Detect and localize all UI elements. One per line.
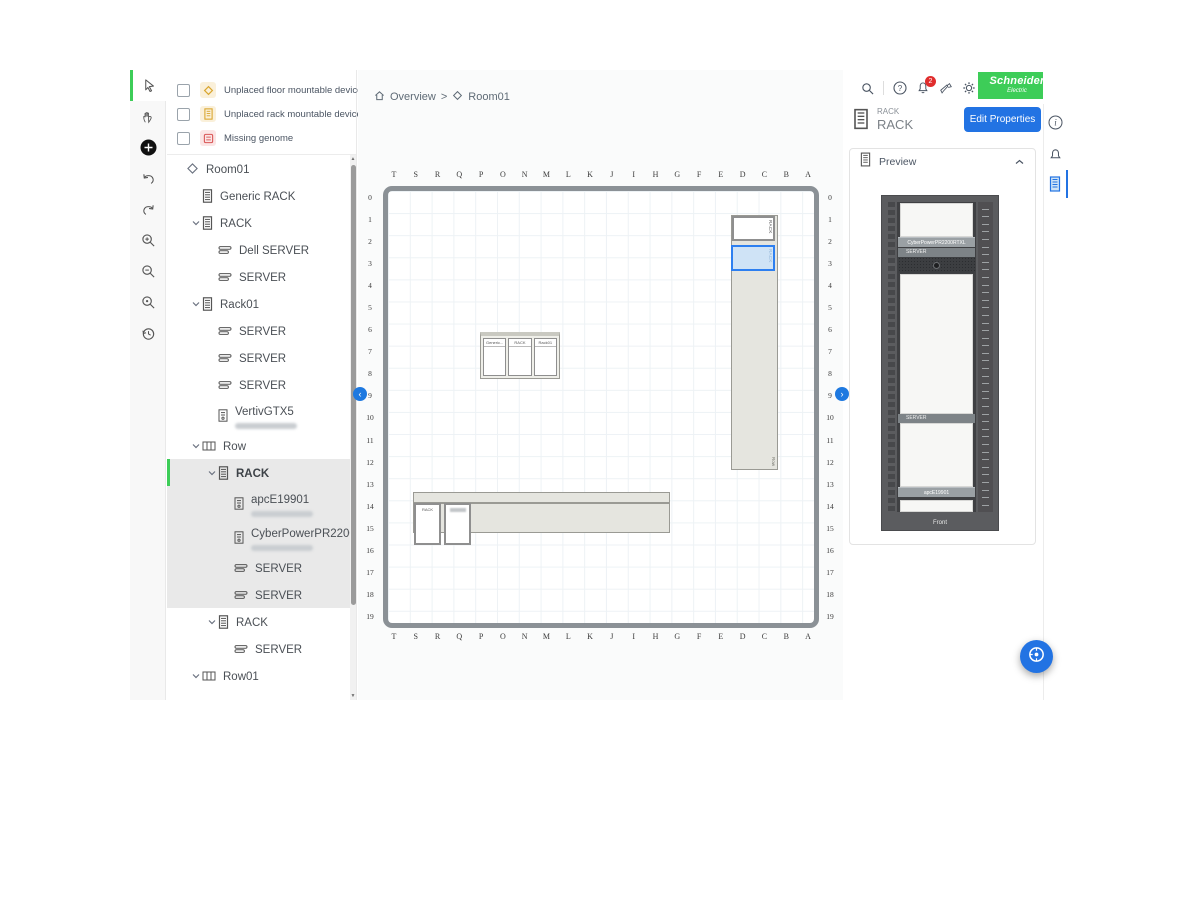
rack-device-icon bbox=[200, 106, 216, 122]
cursor-icon bbox=[142, 78, 157, 93]
grid-col-label: N bbox=[514, 632, 536, 641]
device-server-1: SERVER bbox=[898, 248, 975, 257]
tree-item-label: Dell SERVER bbox=[239, 245, 309, 257]
unit-tick bbox=[982, 505, 989, 506]
floor-plan-canvas[interactable]: Overview > Room01 TSRQPONMLKJIHGFEDCBA T… bbox=[358, 70, 843, 700]
empty-slot bbox=[900, 423, 973, 487]
grid-col-label: K bbox=[579, 170, 601, 179]
tree-item-label: RACK bbox=[236, 617, 268, 629]
unit-tick bbox=[982, 338, 989, 339]
tree-item-room01[interactable]: Room01 bbox=[167, 155, 351, 182]
grid-col-label: J bbox=[601, 170, 623, 179]
tree-item-label: SERVER bbox=[239, 353, 286, 365]
grid-col-label: J bbox=[601, 632, 623, 641]
collapse-left-panel-button[interactable]: ‹ bbox=[353, 387, 367, 401]
empty-slot bbox=[900, 203, 973, 237]
tree-item-label: SERVER bbox=[255, 563, 302, 575]
grid-row-label: 18 bbox=[823, 584, 837, 606]
breadcrumb-overview[interactable]: Overview bbox=[390, 91, 436, 103]
grid-col-label: I bbox=[623, 170, 645, 179]
grid-row-labels-left: 012345678910111213141516171819 bbox=[363, 186, 377, 628]
search-icon[interactable] bbox=[861, 82, 874, 95]
breadcrumb: Overview > Room01 bbox=[374, 90, 510, 104]
grid-row-label: 19 bbox=[363, 606, 377, 628]
unit-tick bbox=[982, 216, 989, 217]
grid-column-labels-top: TSRQPONMLKJIHGFEDCBA bbox=[383, 170, 819, 179]
rack-icon bbox=[202, 216, 213, 230]
device-tree-panel: Unplaced floor mountable devicesUnplaced… bbox=[167, 70, 357, 700]
grid-row-label: 0 bbox=[823, 186, 837, 208]
zoom-in-button[interactable] bbox=[130, 225, 166, 256]
device-name: RACK bbox=[877, 117, 913, 132]
rack-icon bbox=[218, 615, 229, 629]
rack-icon bbox=[853, 108, 869, 135]
history-clock-icon bbox=[141, 326, 156, 341]
info-icon[interactable]: i bbox=[1043, 108, 1068, 136]
ups-icon bbox=[234, 531, 244, 544]
server-icon bbox=[234, 590, 248, 600]
unit-tick bbox=[982, 421, 989, 422]
unit-tick bbox=[982, 436, 989, 437]
chevron-down-icon[interactable] bbox=[189, 218, 202, 228]
rack-label: RACK bbox=[768, 220, 773, 234]
svg-text:i: i bbox=[1054, 117, 1057, 127]
rack-object[interactable]: Generic... bbox=[483, 338, 506, 376]
grid-row-label: 12 bbox=[363, 451, 377, 473]
select-tool-button[interactable] bbox=[130, 70, 166, 101]
tree-scrollbar[interactable]: ▲ ▼ bbox=[350, 155, 356, 700]
notification-badge: 2 bbox=[925, 76, 936, 87]
grid-col-label: G bbox=[666, 632, 688, 641]
empty-slot bbox=[900, 274, 973, 414]
unit-tick bbox=[982, 262, 989, 263]
filter-section: Unplaced floor mountable devicesUnplaced… bbox=[167, 70, 356, 155]
grid-row-label: 18 bbox=[363, 584, 377, 606]
grid-row-label: 4 bbox=[363, 274, 377, 296]
unit-tick bbox=[982, 224, 989, 225]
support-icon bbox=[1027, 645, 1046, 669]
tree-item-apce19901[interactable]: apcE19901 bbox=[167, 486, 351, 520]
chevron-down-icon[interactable] bbox=[189, 299, 202, 309]
grid-col-label: O bbox=[492, 632, 514, 641]
breadcrumb-separator: > bbox=[441, 91, 447, 103]
unit-tick bbox=[982, 292, 989, 293]
rack-icon bbox=[218, 466, 229, 480]
grid-col-label: F bbox=[688, 632, 710, 641]
server-icon bbox=[218, 245, 232, 255]
unit-tick bbox=[982, 360, 989, 361]
scroll-down-icon[interactable]: ▼ bbox=[350, 693, 356, 699]
rack-icon bbox=[860, 152, 871, 172]
grid-col-label: K bbox=[579, 632, 601, 641]
app-window: Unplaced floor mountable devicesUnplaced… bbox=[130, 70, 1068, 700]
unit-tick bbox=[982, 452, 989, 453]
rack-panel-icon[interactable] bbox=[1043, 170, 1068, 198]
tree-item-label: SERVER bbox=[239, 272, 286, 284]
grid-row-label: 3 bbox=[823, 252, 837, 274]
help-icon[interactable]: ? bbox=[893, 81, 907, 95]
tree-item-label: CyberPowerPR2200R... bbox=[251, 528, 351, 540]
grid-col-label: L bbox=[557, 632, 579, 641]
grid-col-label: R bbox=[427, 632, 449, 641]
rack-label: Rack01 bbox=[535, 339, 556, 347]
filter-label: Unplaced rack mountable devices bbox=[224, 109, 367, 120]
tree-item-server[interactable]: SERVER bbox=[167, 344, 351, 371]
rack-object[interactable]: RACK bbox=[732, 216, 775, 241]
grid-row-label: 15 bbox=[363, 517, 377, 539]
tree-item-rack[interactable]: RACK bbox=[167, 209, 351, 236]
selected-device-header: RACK RACK Edit Properties bbox=[849, 106, 1039, 140]
chevron-down-icon[interactable] bbox=[189, 671, 202, 681]
chevron-down-icon[interactable] bbox=[189, 441, 202, 451]
grid-col-label: L bbox=[557, 170, 579, 179]
server-faceplate bbox=[898, 257, 975, 273]
grid-col-label: B bbox=[775, 632, 797, 641]
rack-front-preview: CyberPowerPR2200RTXL SERVER SERVER apcE1… bbox=[881, 195, 999, 531]
filter-checkbox[interactable] bbox=[177, 84, 190, 97]
grid-col-label: B bbox=[775, 170, 797, 179]
grid-row-label: 2 bbox=[363, 230, 377, 252]
collapse-right-panel-button[interactable]: › bbox=[835, 387, 849, 401]
rack-rail-units bbox=[978, 202, 993, 512]
unit-tick bbox=[982, 300, 989, 301]
grid-row-label: 8 bbox=[363, 363, 377, 385]
grid-col-label: G bbox=[666, 170, 688, 179]
grid-col-label: T bbox=[383, 170, 405, 179]
grid-row-label: 5 bbox=[363, 296, 377, 318]
grid-col-label: A bbox=[797, 170, 819, 179]
tree-item-label: Row01 bbox=[223, 671, 259, 683]
unit-tick bbox=[982, 376, 989, 377]
missing-genome-icon bbox=[200, 130, 216, 146]
server-icon bbox=[218, 353, 232, 363]
tree-item-row01[interactable]: Row01 bbox=[167, 662, 351, 689]
grid-row-label: 7 bbox=[823, 341, 837, 363]
row-icon bbox=[202, 670, 216, 682]
grid-row-label: 15 bbox=[823, 517, 837, 539]
device-apc: apcE19901 bbox=[898, 487, 975, 497]
device-server-2: SERVER bbox=[898, 414, 975, 423]
grid-col-label: O bbox=[492, 170, 514, 179]
support-fab-button[interactable] bbox=[1020, 640, 1053, 673]
grid-row-label: 1 bbox=[363, 208, 377, 230]
unit-tick bbox=[982, 429, 989, 430]
unit-tick bbox=[982, 345, 989, 346]
grid-row-label: 2 bbox=[823, 230, 837, 252]
unit-tick bbox=[982, 247, 989, 248]
breadcrumb-room[interactable]: Room01 bbox=[468, 91, 510, 103]
grid-row-label: 13 bbox=[823, 473, 837, 495]
zoom-in-icon bbox=[141, 233, 156, 248]
grid-row-label: 17 bbox=[363, 562, 377, 584]
grid-row-label: 11 bbox=[363, 429, 377, 451]
grid-row-label: 14 bbox=[823, 495, 837, 517]
tree-item-server[interactable]: SERVER bbox=[167, 554, 351, 581]
unit-tick bbox=[982, 353, 989, 354]
unit-tick bbox=[982, 285, 989, 286]
filter-label: Missing genome bbox=[224, 133, 293, 144]
floor-device-icon bbox=[200, 82, 216, 98]
add-tool-button[interactable] bbox=[130, 132, 166, 163]
room-icon bbox=[186, 162, 199, 175]
grid-column-labels-bottom: TSRQPONMLKJIHGFEDCBA bbox=[383, 632, 819, 641]
redacted-subtitle bbox=[251, 545, 313, 551]
rack-object[interactable] bbox=[444, 503, 471, 545]
grid-col-label: H bbox=[645, 632, 667, 641]
edit-properties-button[interactable]: Edit Properties bbox=[964, 107, 1041, 132]
grid-row-label: 10 bbox=[823, 407, 837, 429]
unit-tick bbox=[982, 406, 989, 407]
tree-item-label: SERVER bbox=[239, 326, 286, 338]
scroll-up-icon[interactable]: ▲ bbox=[350, 156, 356, 162]
grid-row-label: 6 bbox=[823, 319, 837, 341]
zoom-fit-button[interactable] bbox=[130, 287, 166, 318]
grid-col-label: D bbox=[732, 632, 754, 641]
server-icon bbox=[234, 644, 248, 654]
tree-item-server[interactable]: SERVER bbox=[167, 635, 351, 662]
row01-header[interactable]: Row01 bbox=[413, 492, 670, 503]
grid-row-label: 19 bbox=[823, 606, 837, 628]
grid-row-label: 7 bbox=[363, 341, 377, 363]
rack-icon bbox=[202, 189, 213, 203]
rack-object[interactable]: RACK bbox=[414, 503, 441, 545]
rack-label: RACK bbox=[768, 249, 773, 263]
scrollbar-thumb[interactable] bbox=[351, 165, 356, 605]
tree-item-row[interactable]: Row bbox=[167, 432, 351, 459]
unit-tick bbox=[982, 474, 989, 475]
grid-col-label: M bbox=[536, 632, 558, 641]
tree-item-label: RACK bbox=[236, 468, 269, 480]
server-icon bbox=[218, 326, 232, 336]
redacted-rack-label bbox=[450, 508, 466, 512]
filter-row: Missing genome bbox=[167, 126, 356, 150]
drawing-toolbar bbox=[130, 70, 166, 700]
tree-item-generic-rack[interactable]: Generic RACK bbox=[167, 182, 351, 209]
grid-col-label: T bbox=[383, 632, 405, 641]
unit-tick bbox=[982, 497, 989, 498]
feedback-icon[interactable] bbox=[939, 82, 953, 95]
plus-circle-icon bbox=[140, 139, 157, 156]
alarms-bell-icon[interactable] bbox=[1043, 140, 1068, 168]
grid-row-label: 10 bbox=[363, 407, 377, 429]
notifications-bell-icon[interactable]: 2 bbox=[916, 81, 930, 95]
redo-icon bbox=[141, 203, 156, 216]
filter-label: Unplaced floor mountable devices bbox=[224, 85, 367, 96]
unit-tick bbox=[982, 323, 989, 324]
unit-tick bbox=[982, 444, 989, 445]
device-type-label: RACK bbox=[877, 107, 899, 116]
collapse-chevron-up-icon[interactable] bbox=[1014, 153, 1025, 171]
unit-tick bbox=[982, 391, 989, 392]
device-tree: Room01Generic RACKRACKDell SERVERSERVERR… bbox=[167, 155, 351, 700]
unit-tick bbox=[982, 277, 989, 278]
filter-checkbox[interactable] bbox=[177, 108, 190, 121]
server-icon bbox=[218, 380, 232, 390]
tree-item-label: Row bbox=[223, 441, 246, 453]
rack-object-selected[interactable]: RACK bbox=[731, 245, 775, 271]
grid-row-label: 16 bbox=[823, 540, 837, 562]
tree-item-label: Generic RACK bbox=[220, 191, 295, 203]
grid-row-label: 5 bbox=[823, 296, 837, 318]
device-cyberpower: CyberPowerPR2200RTXL bbox=[898, 237, 975, 247]
rack-group[interactable]: Generic... RACK Rack01 bbox=[480, 332, 560, 379]
tree-item-label: SERVER bbox=[255, 590, 302, 602]
unit-tick bbox=[982, 414, 989, 415]
ups-icon bbox=[218, 409, 228, 422]
inspector-panel: ? 2 RACK RACK Edit Properties Preview bbox=[843, 70, 1043, 700]
zoom-fit-icon bbox=[141, 295, 156, 310]
tree-item-label: Rack01 bbox=[220, 299, 259, 311]
tree-item-label: Room01 bbox=[206, 164, 249, 176]
tree-item-server[interactable]: SERVER bbox=[167, 581, 351, 608]
filter-row: Unplaced floor mountable devices bbox=[167, 78, 356, 102]
grid-row-label: 16 bbox=[363, 540, 377, 562]
grid-col-label: H bbox=[645, 170, 667, 179]
tree-item-server[interactable]: SERVER bbox=[167, 263, 351, 290]
server-icon bbox=[234, 563, 248, 573]
unit-tick bbox=[982, 368, 989, 369]
grid-col-label: E bbox=[710, 632, 732, 641]
tree-item-rack01[interactable]: Rack01 bbox=[167, 290, 351, 317]
grid-col-label: P bbox=[470, 632, 492, 641]
undo-button[interactable] bbox=[130, 163, 166, 194]
tree-item-label: SERVER bbox=[255, 644, 302, 656]
front-label: Front bbox=[882, 520, 998, 526]
tree-item-label: VertivGTX5 bbox=[235, 406, 294, 418]
right-edge-strip: i bbox=[1043, 70, 1068, 700]
grid-col-label: R bbox=[427, 170, 449, 179]
grid-row-label: 4 bbox=[823, 274, 837, 296]
row-label: Row bbox=[771, 457, 776, 466]
rack-rail-left bbox=[888, 202, 895, 512]
redacted-subtitle bbox=[235, 423, 297, 429]
settings-gear-icon[interactable] bbox=[962, 81, 976, 95]
row-icon bbox=[202, 440, 216, 452]
grid-col-label: E bbox=[710, 170, 732, 179]
grid-col-label: S bbox=[405, 170, 427, 179]
top-icon-bar: ? 2 bbox=[843, 74, 1000, 102]
unit-tick bbox=[982, 398, 989, 399]
rack-device-column: CyberPowerPR2200RTXL SERVER SERVER apcE1… bbox=[897, 202, 976, 512]
grid-col-label: N bbox=[514, 170, 536, 179]
rack-icon bbox=[202, 297, 213, 311]
unit-tick bbox=[982, 269, 989, 270]
zoom-out-icon bbox=[141, 264, 156, 279]
empty-slot bbox=[900, 500, 973, 512]
grid-row-label: 17 bbox=[823, 562, 837, 584]
tree-item-server[interactable]: SERVER bbox=[167, 317, 351, 344]
grid-col-label: M bbox=[536, 170, 558, 179]
rack-label: RACK bbox=[509, 339, 530, 347]
server-icon bbox=[218, 272, 232, 282]
zoom-out-button[interactable] bbox=[130, 256, 166, 287]
unit-tick bbox=[982, 482, 989, 483]
grid-col-label: C bbox=[754, 632, 776, 641]
chevron-down-icon[interactable] bbox=[205, 468, 218, 478]
hand-icon bbox=[141, 110, 155, 124]
grid-col-label: D bbox=[732, 170, 754, 179]
grid-col-label: P bbox=[470, 170, 492, 179]
unit-tick bbox=[982, 459, 989, 460]
tree-item-rack[interactable]: RACK bbox=[167, 459, 351, 486]
preview-card: Preview CyberPowerPR2200RTXL SERVER SERV… bbox=[849, 148, 1036, 545]
svg-text:?: ? bbox=[898, 84, 903, 93]
tree-item-cyberpowerpr2200r-[interactable]: CyberPowerPR2200R... bbox=[167, 520, 351, 554]
tree-item-dell-server[interactable]: Dell SERVER bbox=[167, 236, 351, 263]
home-icon bbox=[374, 90, 385, 104]
tree-item-vertivgtx5[interactable]: VertivGTX5 bbox=[167, 398, 351, 432]
redacted-subtitle bbox=[251, 511, 313, 517]
grid-row-label: 12 bbox=[823, 451, 837, 473]
unit-tick bbox=[982, 467, 989, 468]
unit-tick bbox=[982, 490, 989, 491]
filter-checkbox[interactable] bbox=[177, 132, 190, 145]
unit-tick bbox=[982, 330, 989, 331]
grid-row-label: 6 bbox=[363, 319, 377, 341]
filter-row: Unplaced rack mountable devices bbox=[167, 102, 356, 126]
tree-item-label: apcE19901 bbox=[251, 494, 309, 506]
unit-tick bbox=[982, 209, 989, 210]
history-button[interactable] bbox=[130, 318, 166, 349]
unit-tick bbox=[982, 307, 989, 308]
grid-row-labels-right: 012345678910111213141516171819 bbox=[823, 186, 837, 628]
preview-title: Preview bbox=[879, 156, 1014, 168]
undo-icon bbox=[141, 172, 156, 185]
grid-row-label: 11 bbox=[823, 429, 837, 451]
tree-item-label: SERVER bbox=[239, 380, 286, 392]
grid-row-label: 1 bbox=[823, 208, 837, 230]
grid-row-label: 0 bbox=[363, 186, 377, 208]
unit-tick bbox=[982, 383, 989, 384]
power-knob bbox=[933, 262, 940, 269]
grid-row-label: 13 bbox=[363, 473, 377, 495]
rack-label: Generic... bbox=[484, 339, 505, 347]
grid-col-label: I bbox=[623, 632, 645, 641]
rack-label: RACK bbox=[416, 507, 439, 512]
grid-col-label: F bbox=[688, 170, 710, 179]
divider bbox=[883, 81, 884, 95]
tree-item-label: RACK bbox=[220, 218, 252, 230]
grid-col-label: Q bbox=[448, 632, 470, 641]
grid-col-label: S bbox=[405, 632, 427, 641]
room-diamond-icon bbox=[452, 90, 463, 104]
grid-row-label: 3 bbox=[363, 252, 377, 274]
unit-tick bbox=[982, 315, 989, 316]
unit-tick bbox=[982, 239, 989, 240]
rack-object[interactable]: RACK bbox=[508, 338, 531, 376]
grid-row-label: 8 bbox=[823, 363, 837, 385]
pan-tool-button[interactable] bbox=[130, 101, 166, 132]
grid-col-label: A bbox=[797, 632, 819, 641]
tree-item-server[interactable]: SERVER bbox=[167, 371, 351, 398]
preview-header: Preview bbox=[850, 149, 1035, 175]
tree-item-rack[interactable]: RACK bbox=[167, 608, 351, 635]
ups-icon bbox=[234, 497, 244, 510]
chevron-down-icon[interactable] bbox=[205, 617, 218, 627]
unit-tick bbox=[982, 254, 989, 255]
unit-tick bbox=[982, 231, 989, 232]
rack-object[interactable]: Rack01 bbox=[534, 338, 557, 376]
grid-col-label: Q bbox=[448, 170, 470, 179]
grid-col-label: C bbox=[754, 170, 776, 179]
redo-button[interactable] bbox=[130, 194, 166, 225]
grid-row-label: 14 bbox=[363, 495, 377, 517]
